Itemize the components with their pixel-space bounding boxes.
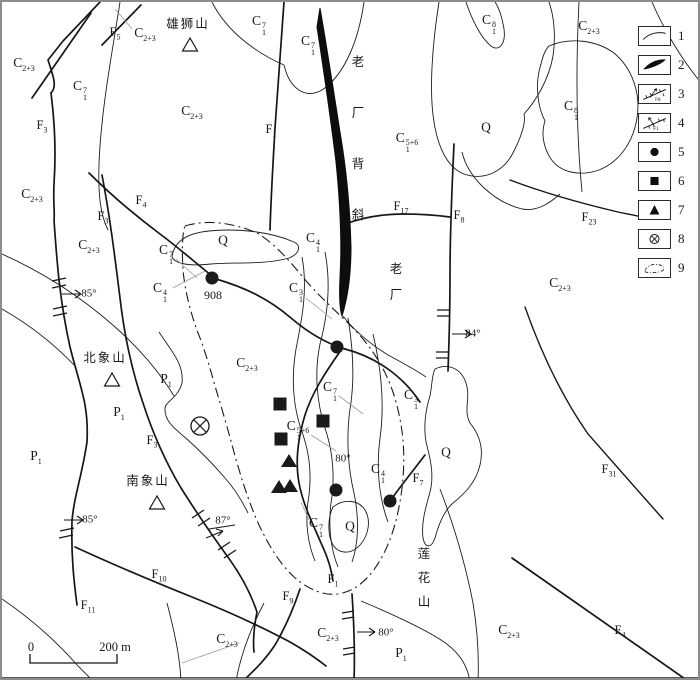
fault-label: F4 <box>615 624 626 639</box>
fault-label: F10 <box>152 568 167 583</box>
formation-label: Q <box>218 233 228 247</box>
fault-label: F3 <box>98 210 109 225</box>
legend: 1 2 F8 3 F1 4 <box>638 26 690 278</box>
formation-label: C71 <box>73 79 87 101</box>
filled-triangle-icon <box>638 200 671 220</box>
formation-label: C2+3 <box>13 56 35 72</box>
formation-label: Q <box>481 120 491 134</box>
legend-item-boundary: 1 <box>638 26 690 46</box>
fault-label: F5 <box>110 26 121 41</box>
legend-item-fault-f1: F1 4 <box>638 113 690 133</box>
geological-map-figure: C2+3C71C2+3C2+3C71C71C5+61C81C2+3C81QC2+… <box>0 0 700 680</box>
place-name-char: 莲 <box>418 548 431 561</box>
formation-label: P1 <box>395 646 407 662</box>
legend-num: 4 <box>678 115 690 131</box>
formation-label: C2+3 <box>181 104 203 120</box>
legend-num: 9 <box>678 260 690 276</box>
formation-label: C2+3 <box>498 623 520 639</box>
crossed-circle-icon <box>638 229 671 249</box>
formation-label: C41 <box>153 281 167 303</box>
formation-label: C2+3 <box>236 356 258 372</box>
fault-f8-icon: F8 <box>638 84 671 104</box>
formation-label: C41 <box>371 462 385 484</box>
legend-item-ore-body: 2 <box>638 55 690 75</box>
strike-angle: 85° <box>81 289 96 300</box>
filled-square-icon <box>638 171 671 191</box>
fault-label: F31 <box>602 463 617 478</box>
svg-text:F1: F1 <box>653 126 659 132</box>
elevation-label: 908 <box>204 289 222 301</box>
scale-bar-length: 200 m <box>99 641 131 654</box>
fault-label: F3 <box>147 434 158 449</box>
legend-num: 5 <box>678 144 690 160</box>
formation-label: C2+3 <box>317 626 339 642</box>
legend-item-crossed-circle: 8 <box>638 229 690 249</box>
formation-label: C5+61 <box>287 419 310 441</box>
formation-label: P1 <box>160 372 172 388</box>
fault-label: F3 <box>37 119 48 134</box>
legend-num: 1 <box>678 28 690 44</box>
legend-item-circle: 5 <box>638 142 690 162</box>
legend-num: 3 <box>678 86 690 102</box>
legend-item-triangle: 7 <box>638 200 690 220</box>
fault-f1-icon: F1 <box>638 113 671 133</box>
fault-label: F1 <box>328 573 339 588</box>
fault-label: F11 <box>81 599 96 614</box>
formation-label: Q <box>345 519 355 533</box>
legend-item-square: 6 <box>638 171 690 191</box>
strike-angle: 85° <box>82 515 97 526</box>
place-name-char: 花 <box>418 572 431 585</box>
legend-num: 2 <box>678 57 690 73</box>
legend-num: 7 <box>678 202 690 218</box>
geological-boundary-icon <box>638 26 671 46</box>
strike-angle: 80° <box>335 454 350 465</box>
formation-label: C71 <box>252 14 266 36</box>
formation-label: C31 <box>404 388 418 410</box>
formation-label: Q <box>441 445 451 459</box>
filled-circle-icon <box>638 142 671 162</box>
legend-item-fault-f8: F8 3 <box>638 84 690 104</box>
formation-label: C41 <box>306 231 320 253</box>
formation-label: C2+3 <box>21 187 43 203</box>
formation-label: C81 <box>564 99 578 121</box>
place-name-char: 厂 <box>352 107 365 120</box>
ore-body-icon <box>638 55 671 75</box>
place-name: 北象山 <box>83 352 127 365</box>
fault-label: F1 <box>266 123 277 138</box>
formation-label: C2+3 <box>578 19 600 35</box>
formation-label: C81 <box>482 13 496 35</box>
place-name-char: 背 <box>352 158 365 171</box>
fault-label: F7 <box>413 472 424 487</box>
formation-label: C71 <box>159 243 173 265</box>
formation-label: C71 <box>323 380 337 402</box>
place-name-char: 老 <box>390 263 403 276</box>
fault-label: F23 <box>582 211 597 226</box>
place-name-char: 老 <box>352 56 365 69</box>
formation-label: C5+61 <box>396 131 419 153</box>
legend-item-area-boundary: 9 <box>638 258 690 278</box>
fault-label: F17 <box>394 200 409 215</box>
strike-angle: 80° <box>378 628 393 639</box>
formation-label: C71 <box>309 516 323 538</box>
place-name: 南象山 <box>126 475 170 488</box>
formation-label: C31 <box>289 281 303 303</box>
svg-text:F8: F8 <box>655 97 661 103</box>
legend-num: 8 <box>678 231 690 247</box>
formation-label: C2+3 <box>78 238 100 254</box>
place-name-char: 厂 <box>390 289 403 302</box>
dashdot-outline-icon <box>638 258 671 278</box>
place-name: 雄狮山 <box>166 18 210 31</box>
strike-angle: 84° <box>465 329 480 340</box>
fault-label: F4 <box>136 194 147 209</box>
place-name-char: 山 <box>418 596 431 609</box>
formation-label: P1 <box>30 449 42 465</box>
legend-num: 6 <box>678 173 690 189</box>
fault-label: F9 <box>283 590 294 605</box>
formation-label: C71 <box>301 34 315 56</box>
strike-angle: 87° <box>215 516 230 527</box>
formation-label: C2+3 <box>549 276 571 292</box>
formation-label: C2+3 <box>216 632 238 648</box>
formation-label: C2+3 <box>134 26 156 42</box>
label-layer: C2+3C71C2+3C2+3C71C71C5+61C81C2+3C81QC2+… <box>2 2 700 680</box>
place-name-char: 斜 <box>352 209 365 222</box>
fault-label: F8 <box>454 209 465 224</box>
formation-label: P1 <box>113 405 125 421</box>
scale-bar-zero: 0 <box>28 641 34 654</box>
